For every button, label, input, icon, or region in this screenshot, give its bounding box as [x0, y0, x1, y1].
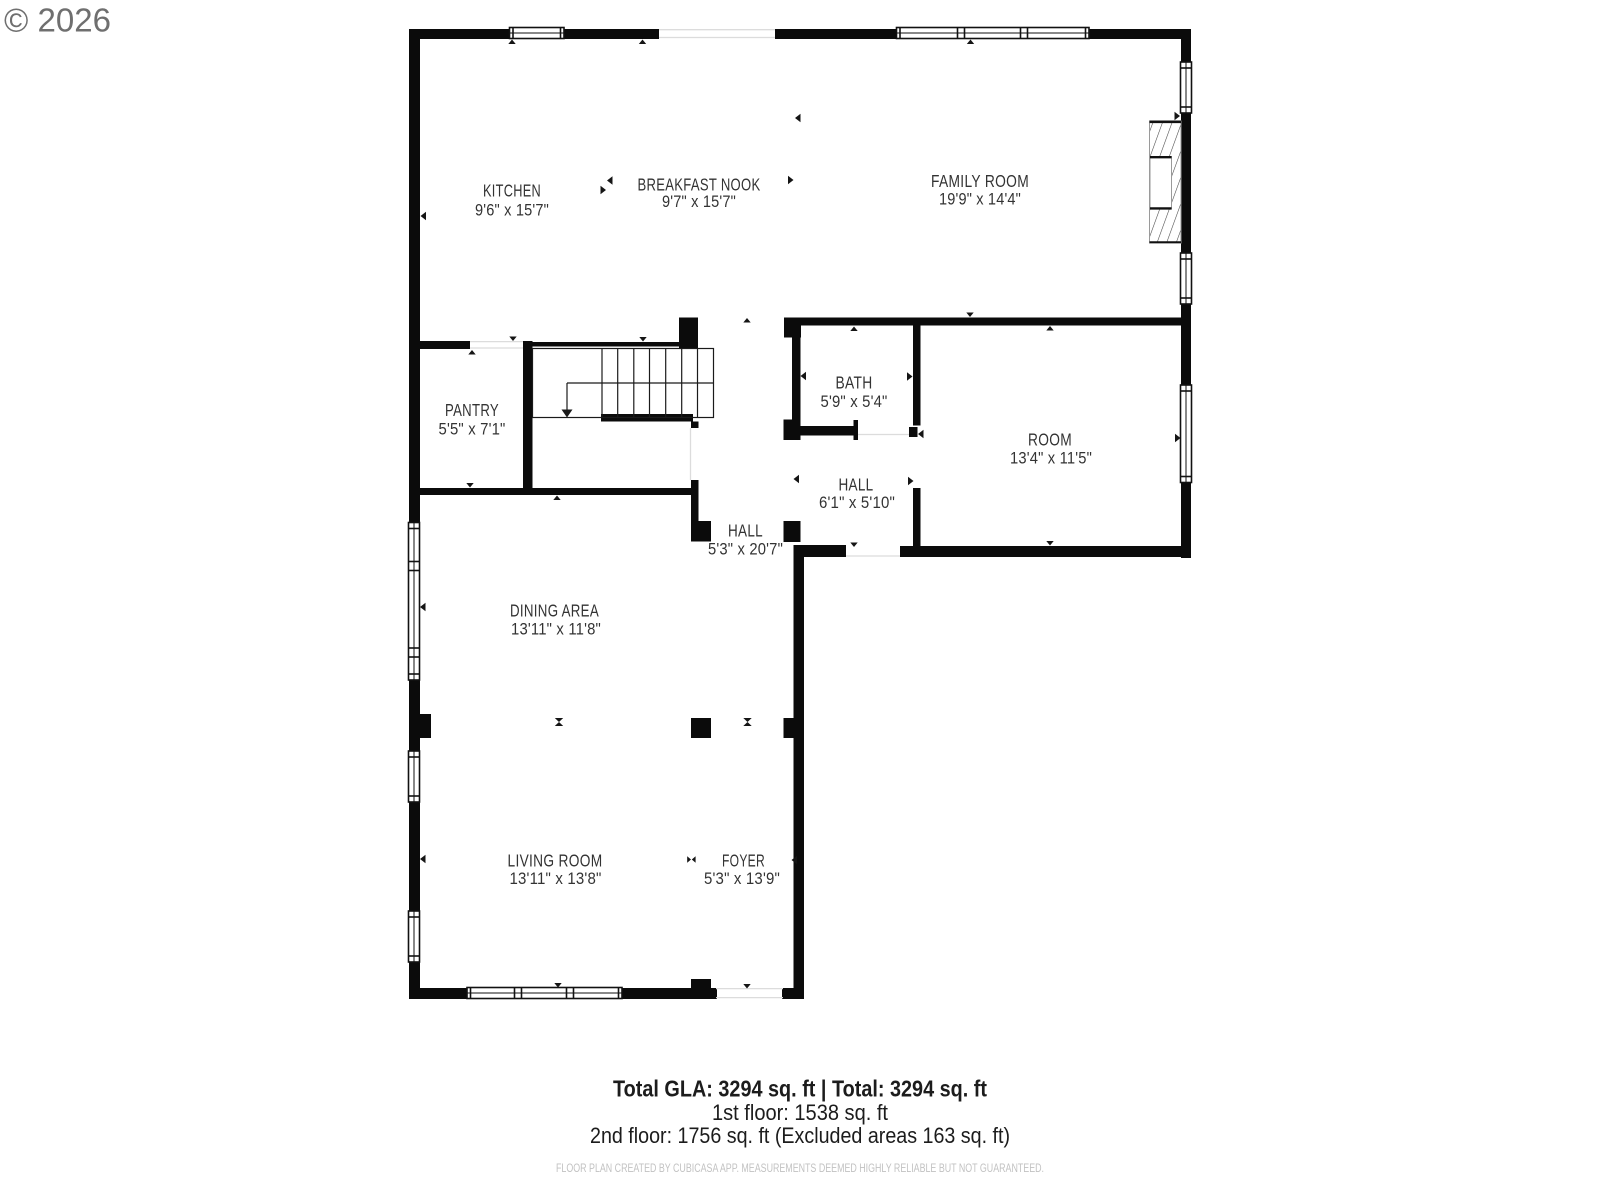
svg-text:FLOOR PLAN CREATED BY CUBICASA: FLOOR PLAN CREATED BY CUBICASA APP. MEAS… — [556, 1161, 1044, 1175]
svg-text:FAMILY ROOM: FAMILY ROOM — [931, 171, 1029, 191]
svg-text:9'7" x 15'7": 9'7" x 15'7" — [662, 192, 736, 211]
svg-text:FOYER: FOYER — [722, 850, 765, 870]
svg-text:ROOM: ROOM — [1028, 430, 1072, 450]
svg-text:LIVING ROOM: LIVING ROOM — [508, 850, 603, 870]
svg-text:HALL: HALL — [839, 475, 874, 495]
svg-text:13'11" x 13'8": 13'11" x 13'8" — [510, 869, 602, 888]
svg-text:5'9" x 5'4": 5'9" x 5'4" — [821, 392, 888, 411]
svg-text:1st floor: 1538 sq. ft: 1st floor: 1538 sq. ft — [712, 1100, 889, 1125]
svg-text:5'3" x 20'7": 5'3" x 20'7" — [708, 540, 783, 559]
svg-text:KITCHEN: KITCHEN — [483, 181, 541, 201]
svg-text:BATH: BATH — [836, 373, 873, 393]
svg-text:HALL: HALL — [728, 521, 763, 541]
svg-text:19'9" x 14'4": 19'9" x 14'4" — [939, 190, 1021, 209]
svg-text:13'4" x 11'5": 13'4" x 11'5" — [1010, 449, 1092, 468]
svg-text:5'3" x 13'9": 5'3" x 13'9" — [704, 869, 780, 888]
svg-text:Total GLA: 3294 sq. ft | Total: Total GLA: 3294 sq. ft | Total: 3294 sq.… — [613, 1075, 987, 1101]
svg-text:5'5" x 7'1": 5'5" x 7'1" — [439, 420, 506, 439]
svg-text:PANTRY: PANTRY — [445, 400, 499, 420]
svg-text:6'1" x 5'10": 6'1" x 5'10" — [819, 493, 895, 512]
svg-text:2nd floor: 1756 sq. ft (Exclud: 2nd floor: 1756 sq. ft (Excluded areas 1… — [590, 1123, 1010, 1148]
svg-text:© 2026: © 2026 — [4, 2, 111, 39]
svg-text:13'11" x 11'8": 13'11" x 11'8" — [511, 619, 601, 638]
svg-text:9'6" x 15'7": 9'6" x 15'7" — [475, 201, 549, 220]
svg-text:DINING AREA: DINING AREA — [510, 601, 599, 621]
